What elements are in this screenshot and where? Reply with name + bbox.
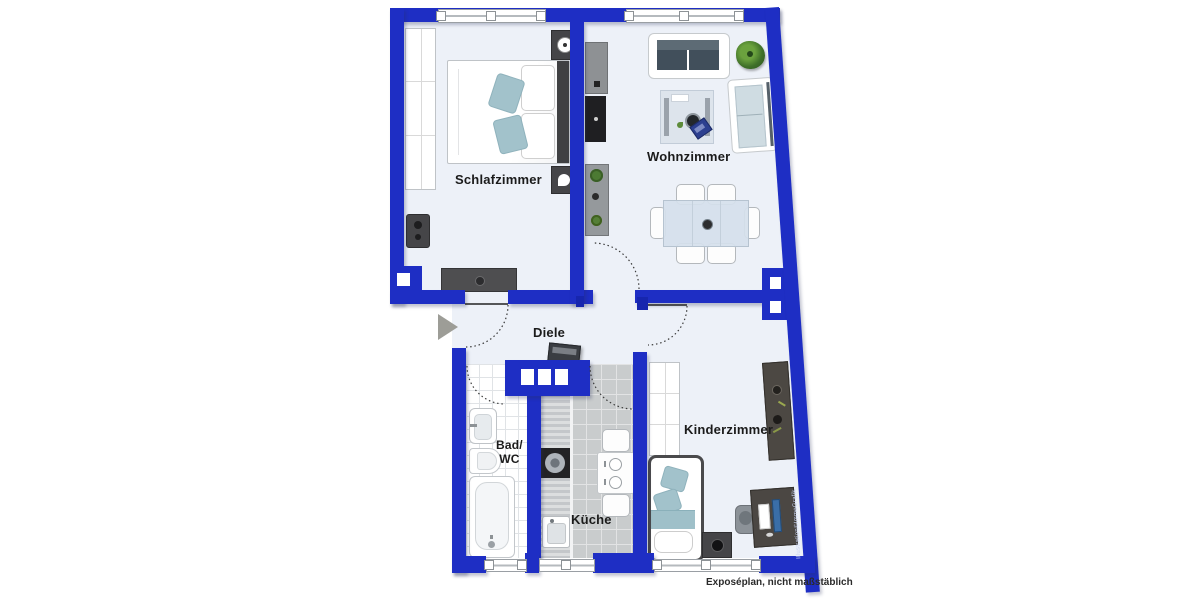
double-bed-icon <box>447 60 570 164</box>
sofa-icon <box>648 33 730 79</box>
tv-icon <box>585 96 606 142</box>
room-label-schlafzimmer: Schlafzimmer <box>455 172 542 187</box>
bathtub-icon <box>469 476 515 558</box>
dining-table-icon <box>663 200 749 247</box>
kitchen-sink-icon <box>542 516 570 548</box>
kitchen-table-icon <box>597 452 635 494</box>
dresser-icon <box>441 268 517 292</box>
desk-icon <box>750 487 798 548</box>
corner-plant-icon <box>734 38 768 72</box>
glass-block <box>521 369 534 385</box>
room-label-bad-wc: Bad/ WC <box>496 438 523 466</box>
wall-bottom <box>452 556 486 573</box>
room-label-wohnzimmer: Wohnzimmer <box>647 149 730 164</box>
stove-icon <box>541 448 570 478</box>
wall-bottom <box>593 553 654 573</box>
door-jamb <box>576 296 584 307</box>
door-jamb <box>637 297 648 310</box>
wall-mid-right <box>635 290 771 303</box>
nightstand-icon <box>702 532 732 558</box>
glass-block <box>555 369 568 385</box>
entrance-arrow-icon <box>438 314 458 340</box>
media-board-icon <box>585 42 608 94</box>
wall-niche <box>397 273 410 286</box>
speaker-icon <box>406 214 430 248</box>
room-label-kinderzimmer: Kinderzimmer <box>684 422 773 437</box>
plant-shelf-icon <box>585 164 609 236</box>
chair-icon <box>602 429 630 452</box>
room-label-diele: Diele <box>533 325 565 340</box>
glass-block <box>538 369 551 385</box>
bath-sink-icon <box>469 408 497 444</box>
floor-plan: Schlafzimmer Wohnzimmer Diele Bad/ WC Kü… <box>0 0 1200 600</box>
wall-bottom-pier <box>525 553 539 573</box>
rug-table-icon <box>660 90 714 144</box>
wall-bottom-right <box>759 556 815 573</box>
chimney-flue <box>770 277 781 289</box>
wardrobe-icon <box>405 28 436 190</box>
wardrobe-icon <box>649 362 680 456</box>
wall-mid-left <box>390 290 465 304</box>
wall-left-upper <box>390 8 404 304</box>
child-bed-icon <box>648 455 704 562</box>
chimney-flue <box>770 301 781 313</box>
wall-left-lower <box>452 348 466 573</box>
wall-kitchen-kids <box>633 352 647 558</box>
monitor-icon <box>772 499 782 532</box>
wall-divider-bedroom <box>570 22 584 304</box>
disclaimer-text: Exposéplan, nicht maßstäblich <box>706 577 853 588</box>
room-label-kueche: Küche <box>571 512 612 527</box>
